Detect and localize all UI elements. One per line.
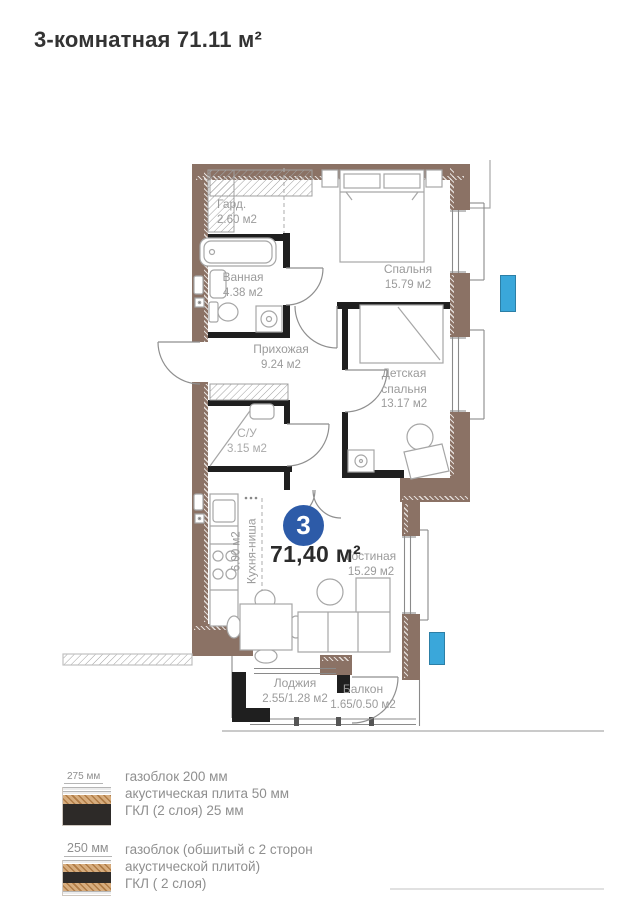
partition-wall	[337, 302, 450, 309]
legend-line: газоблок 200 мм	[125, 768, 289, 785]
partition-wall	[342, 470, 404, 478]
total-area-label: 71,40 м²	[270, 541, 361, 568]
wall-section-icon	[62, 860, 111, 896]
pouf-icon	[317, 579, 343, 605]
room-area: 2.55/1.28 м2	[262, 692, 327, 707]
room-name: Прихожая	[253, 342, 309, 358]
partition-wall	[342, 412, 348, 470]
legend-line: газоблок (обшитый с 2 сторон	[125, 841, 313, 858]
room-label-hall: Прихожая 9.24 м2	[253, 342, 309, 373]
partition-wall	[283, 233, 290, 268]
washing-machine-icon	[256, 306, 282, 332]
chair-icon	[407, 424, 433, 450]
bathtub-icon	[200, 238, 276, 266]
partition-wall	[208, 466, 292, 472]
legend-swatch-275: 275 мм	[62, 766, 114, 826]
legend-item: 250 мм газоблок (обшитый с 2 сторон акус…	[62, 839, 313, 896]
ac-unit-icon	[429, 632, 445, 665]
room-name: С/У	[227, 426, 267, 442]
cabinet-icon	[348, 450, 374, 472]
room-label-kids-bedroom: Детская спальня 13.17 м2	[368, 366, 440, 412]
double-bed-icon	[340, 170, 424, 262]
unit-number: 3	[296, 510, 310, 541]
legend-line: ГКЛ ( 2 слоя)	[125, 875, 313, 892]
room-label-loggia: Лоджия 2.55/1.28 м2	[262, 676, 327, 707]
room-area: 1.65/0.50 м2	[330, 698, 395, 713]
single-bed-icon	[360, 305, 443, 363]
legend-line: акустическая плита 50 мм	[125, 785, 289, 802]
room-label-bedroom: Спальня 15.79 м2	[384, 262, 432, 293]
wall-insulation-hatch	[404, 504, 408, 534]
room-name: Детская спальня	[368, 366, 440, 397]
room-name: Кухня-ниша	[245, 503, 261, 599]
toilet-icon	[209, 302, 238, 322]
room-label-wc: С/У 3.15 м2	[227, 426, 267, 457]
desk-icon	[404, 444, 449, 479]
legend-text: газоблок (обшитый с 2 сторон акустическо…	[125, 839, 313, 892]
wall-insulation-hatch	[404, 616, 408, 678]
wall-thickness-label: 275 мм	[64, 771, 103, 784]
wall-section-icon	[62, 787, 111, 826]
legend-line: ГКЛ (2 слоя) 25 мм	[125, 802, 289, 819]
sofa-icon	[298, 578, 390, 652]
room-label-kitchen: 6.00 м2 Кухня-ниша	[230, 503, 261, 599]
legend-text: газоблок 200 мм акустическая плита 50 мм…	[125, 766, 289, 819]
room-label-wardrobe: Гард. 2.60 м2	[217, 197, 257, 228]
room-name: Ванная	[222, 270, 263, 286]
room-area: 4.38 м2	[222, 286, 263, 301]
room-area: 3.15 м2	[227, 442, 267, 457]
room-name: Гард.	[217, 197, 257, 213]
wall-type-legend: 275 мм газоблок 200 мм акустическая плит…	[62, 766, 313, 900]
room-area: 13.17 м2	[368, 397, 440, 412]
room-area: 9.24 м2	[253, 358, 309, 373]
ac-unit-icon	[500, 275, 516, 312]
wall-insulation-hatch	[204, 384, 208, 622]
room-area: 2.60 м2	[217, 213, 257, 228]
partition-wall	[208, 332, 290, 338]
unit-number-badge: 3	[283, 505, 324, 546]
partition-wall	[284, 406, 290, 424]
room-name: Балкон	[330, 682, 395, 698]
wall-insulation-hatch	[194, 626, 252, 630]
wall-insulation-hatch	[450, 168, 454, 210]
legend-swatch-250: 250 мм	[62, 839, 114, 896]
room-label-bathroom: Ванная 4.38 м2	[222, 270, 263, 301]
wall-thickness-label: 250 мм	[64, 841, 112, 857]
wall-insulation-hatch	[322, 657, 350, 661]
wall-insulation-hatch	[204, 172, 208, 342]
room-name: Спальня	[384, 262, 432, 278]
partition-wall	[208, 234, 290, 241]
wall-insulation-hatch	[450, 275, 454, 335]
window-icon	[232, 203, 484, 726]
room-name: Лоджия	[262, 676, 327, 692]
room-area: 15.79 м2	[384, 278, 432, 293]
legend-item: 275 мм газоблок 200 мм акустическая плит…	[62, 766, 313, 826]
page-title: 3-комнатная 71.11 м²	[34, 27, 262, 53]
counter-dots-icon	[245, 497, 258, 500]
wall-insulation-hatch	[450, 414, 454, 476]
legend-line: акустической плитой)	[125, 858, 313, 875]
floor-plan-page: 3-комнатная 71.11 м²	[0, 0, 633, 900]
room-area: 6.00 м2	[230, 503, 245, 599]
partition-wall	[342, 302, 348, 370]
wall-insulation-hatch	[402, 496, 468, 500]
partition-wall	[208, 400, 290, 406]
wall-insulation-hatch	[196, 176, 464, 180]
plan-linework	[0, 0, 633, 900]
room-label-balcony: Балкон 1.65/0.50 м2	[330, 682, 395, 713]
